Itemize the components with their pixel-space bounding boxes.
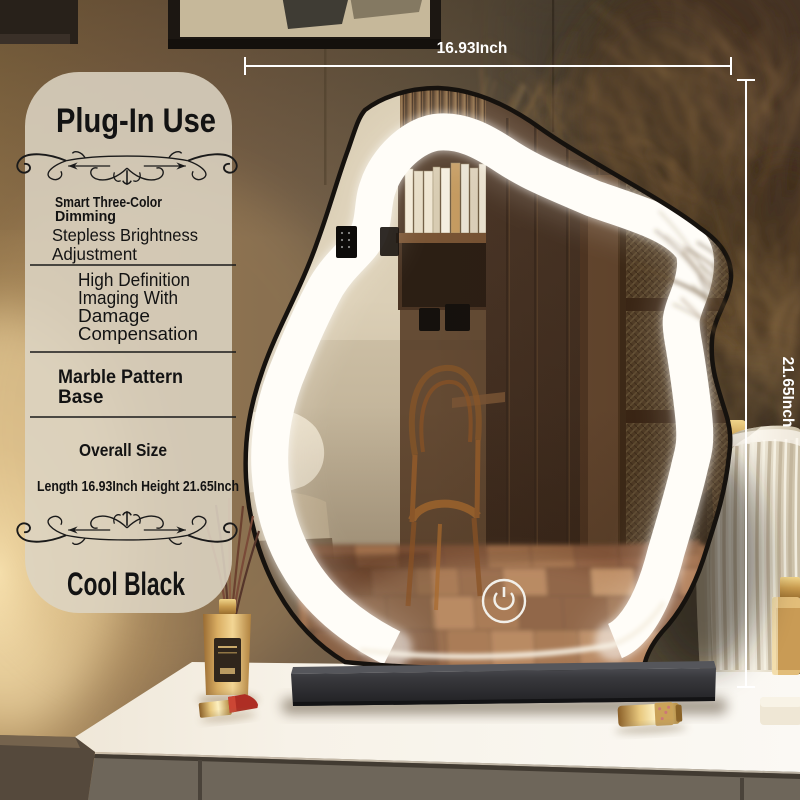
svg-text:Length 16.93Inch Height 21.65I: Length 16.93Inch Height 21.65Inch (37, 479, 239, 495)
svg-text:Compensation: Compensation (78, 324, 198, 344)
svg-text:Base: Base (58, 387, 103, 408)
svg-text:High Definition: High Definition (78, 270, 190, 290)
svg-text:Imaging With: Imaging With (78, 288, 178, 308)
svg-text:Cool Black: Cool Black (67, 566, 185, 602)
svg-text:Plug-In Use: Plug-In Use (56, 102, 216, 140)
svg-text:Marble Pattern: Marble Pattern (58, 367, 183, 388)
svg-text:Stepless Brightness: Stepless Brightness (52, 225, 198, 245)
svg-text:16.93Inch: 16.93Inch (437, 40, 508, 57)
svg-text:Damage: Damage (78, 306, 150, 326)
svg-text:21.65Inch: 21.65Inch (779, 357, 796, 428)
svg-text:Adjustment: Adjustment (52, 244, 137, 264)
svg-text:Overall Size: Overall Size (79, 440, 167, 460)
svg-text:Dimming: Dimming (55, 209, 116, 225)
